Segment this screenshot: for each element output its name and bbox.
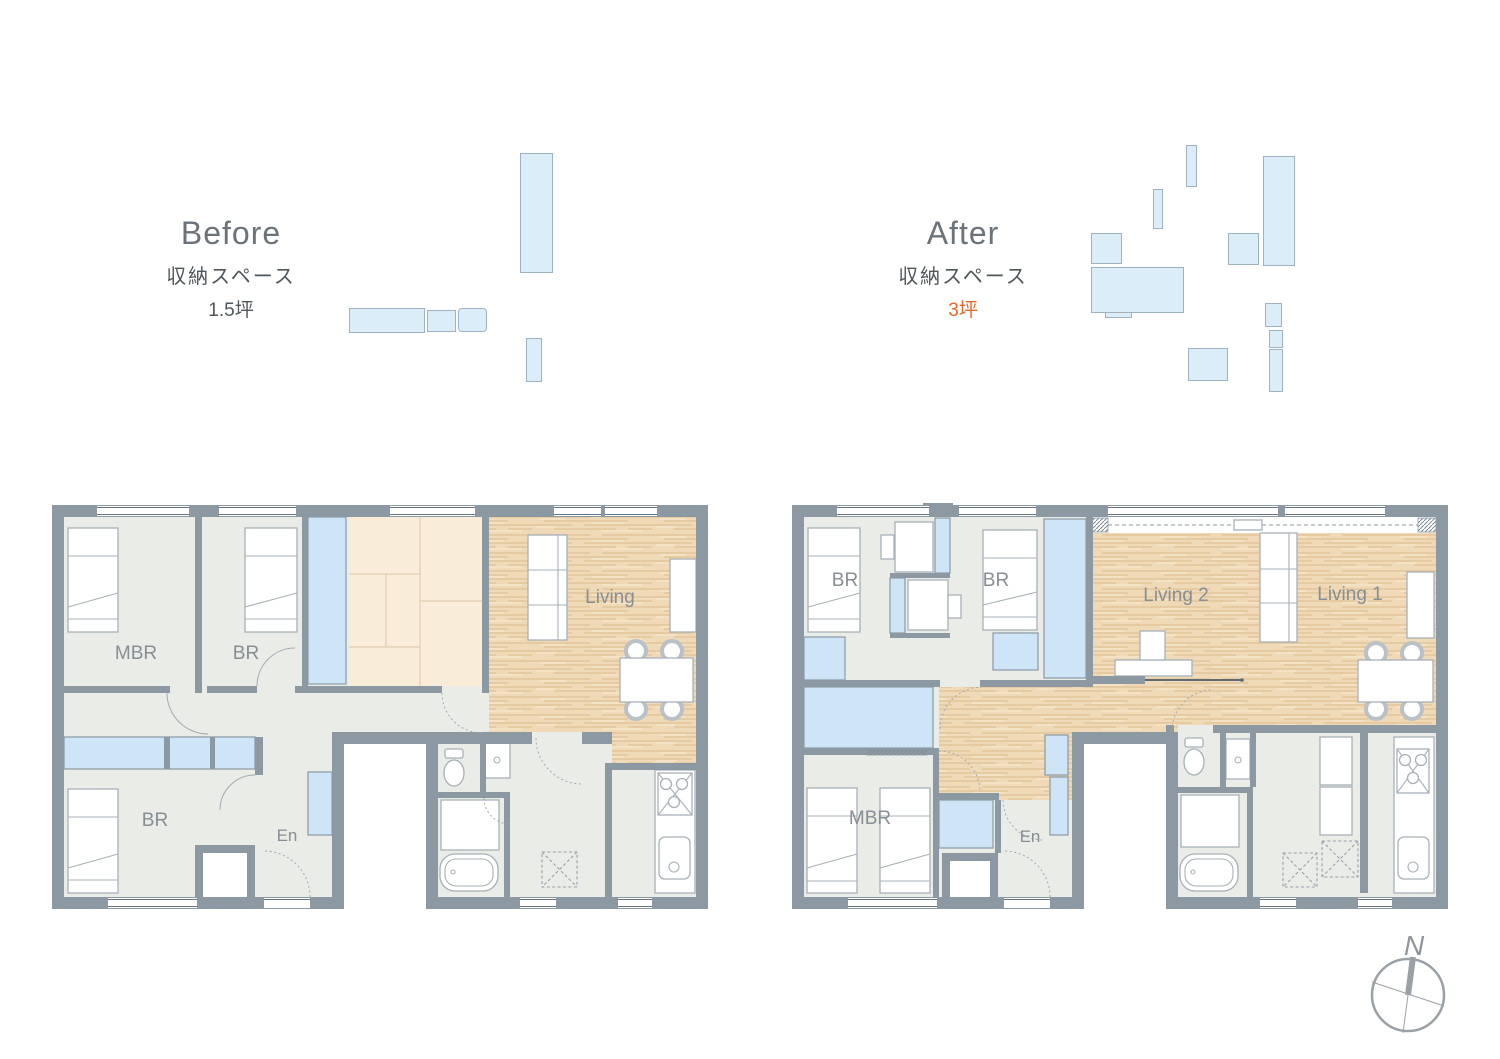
room-label-living: Living	[585, 587, 635, 608]
room-label-br-left: BR	[832, 570, 858, 591]
storage-block	[1188, 348, 1228, 381]
counter-icon	[1407, 572, 1434, 638]
bed-icon	[68, 528, 118, 632]
exterior-notch	[1084, 744, 1166, 933]
storage-block	[526, 338, 542, 382]
after-title: After	[848, 215, 1078, 252]
before-floor-plan: MBR BR Living BR En	[52, 497, 708, 933]
storage-block	[1105, 313, 1132, 318]
storage-block	[1186, 145, 1197, 187]
compass-needle-icon	[1408, 957, 1413, 995]
compass: N	[1360, 925, 1460, 1055]
storage-block	[1269, 349, 1283, 392]
storage-block	[520, 153, 553, 273]
toilet-icon	[1184, 738, 1204, 775]
after-floor-plan: BR BR Living 2 Living 1 MBR En	[792, 497, 1448, 933]
bath-vanity-icon	[441, 800, 499, 850]
compass-north-label: N	[1404, 930, 1425, 961]
storage-block	[1263, 156, 1295, 266]
living-wood-floor	[489, 517, 696, 763]
room-label-br-bottom: BR	[142, 810, 168, 831]
window-band	[1090, 517, 1436, 533]
storage-block	[1091, 267, 1184, 313]
bed-icon	[245, 528, 297, 632]
after-storage-area: 3坪	[848, 295, 1078, 322]
bed-icon	[807, 788, 857, 893]
toilet-icon	[444, 749, 464, 786]
pipe-shaft	[203, 853, 247, 897]
stove-icon	[658, 773, 692, 815]
storage-block	[349, 308, 425, 333]
counter-icon	[670, 559, 696, 632]
bathtub-icon	[440, 854, 498, 891]
sofa-icon	[1260, 533, 1297, 642]
room-label-entrance: En	[1020, 827, 1041, 846]
room-label-mbr: MBR	[115, 643, 157, 664]
storage-block	[1269, 330, 1283, 348]
bathtub-icon	[1180, 854, 1238, 891]
room-label-br-top: BR	[233, 643, 259, 664]
bed-icon	[880, 788, 930, 893]
before-header: Before 収納スペース 1.5坪	[116, 215, 346, 322]
tatami-room	[349, 517, 485, 686]
entry-door	[264, 898, 310, 908]
walk-in-closet	[804, 687, 933, 748]
storage-block	[1228, 233, 1259, 265]
room-label-mbr: MBR	[849, 808, 891, 829]
exterior-notch	[344, 744, 426, 933]
after-subtitle: 収納スペース	[848, 260, 1078, 289]
room-label-living2: Living 2	[1143, 585, 1209, 606]
bed-icon	[68, 789, 118, 893]
storage-block	[1153, 189, 1163, 229]
sofa-icon	[528, 535, 567, 640]
sink-icon	[659, 837, 690, 879]
room-label-br-right: BR	[983, 570, 1009, 591]
bath-vanity-icon	[1181, 795, 1239, 847]
storage-block	[458, 308, 487, 332]
page: Before 収納スペース 1.5坪 After 収納スペース 3坪	[0, 0, 1500, 1059]
before-subtitle: 収納スペース	[116, 260, 346, 289]
stove-icon	[1397, 749, 1429, 793]
pipe-shaft	[950, 861, 990, 897]
storage-block	[1091, 233, 1122, 264]
storage-block	[1265, 303, 1282, 327]
railing-hatch	[867, 749, 927, 755]
sink-icon	[1398, 837, 1429, 879]
entry-door	[1004, 898, 1050, 908]
washbasin-icon	[1226, 739, 1250, 779]
cabinet-icon	[1320, 737, 1352, 785]
room-label-entrance: En	[277, 826, 298, 845]
room-label-living1: Living 1	[1317, 584, 1383, 605]
before-storage-area: 1.5坪	[116, 295, 346, 322]
cabinet-icon	[1320, 787, 1352, 835]
before-title: Before	[116, 215, 346, 252]
washbasin-icon	[484, 740, 510, 778]
storage-block	[427, 310, 456, 332]
after-header: After 収納スペース 3坪	[848, 215, 1078, 322]
